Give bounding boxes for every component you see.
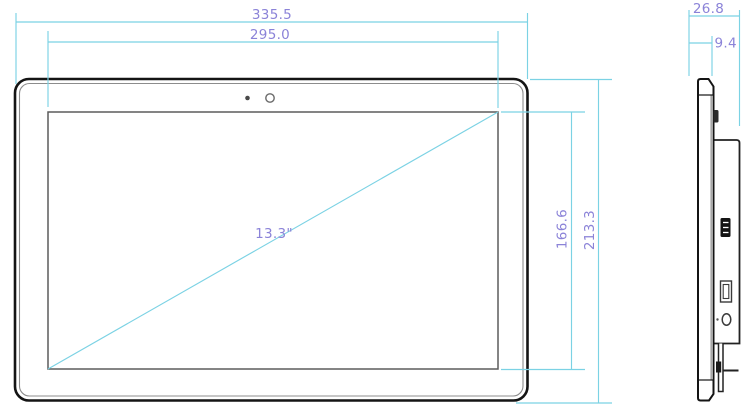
dimension-drawing-page: 335.5 295.0 166.6 213.3 26.8 9.4 13.3" bbox=[0, 0, 750, 410]
dim-label-outer-height: 213.3 bbox=[582, 210, 598, 250]
dimension-drawing: 335.5 295.0 166.6 213.3 26.8 9.4 13.3" bbox=[0, 0, 750, 410]
dim-label-screen-width: 295.0 bbox=[250, 27, 290, 43]
reset-pinhole-icon bbox=[716, 318, 718, 320]
dim-label-outer-width: 335.5 bbox=[252, 7, 292, 23]
dim-label-total-depth: 26.8 bbox=[693, 1, 724, 17]
mount-tab bbox=[716, 362, 721, 373]
side-view bbox=[698, 79, 740, 401]
microphone-icon bbox=[245, 96, 250, 101]
power-button-icon bbox=[714, 110, 719, 123]
dim-label-panel-depth: 9.4 bbox=[715, 36, 737, 52]
dim-label-screen-diagonal: 13.3" bbox=[255, 226, 293, 242]
dim-label-screen-height: 166.6 bbox=[555, 209, 571, 249]
audio-jack-icon bbox=[722, 314, 731, 326]
